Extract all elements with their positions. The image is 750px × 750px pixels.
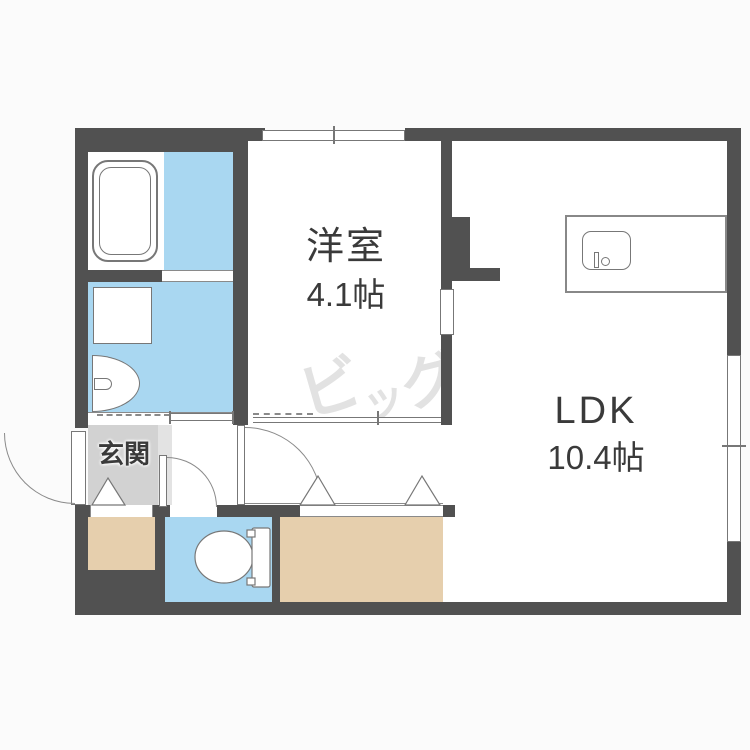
bath-door-opening xyxy=(162,270,233,282)
washroom-sliding-track-dashed xyxy=(97,414,170,416)
washroom-sliding-panel xyxy=(170,413,233,421)
ldk-area: 10.4帖 xyxy=(480,439,712,477)
closet-opening xyxy=(300,505,443,517)
floorplan-canvas: ビ ッ グ xyxy=(0,0,750,750)
storage-opening xyxy=(90,505,153,517)
bathtub-inner-rim xyxy=(99,167,151,255)
wall-ldk-stub xyxy=(452,268,500,281)
wall-bottom xyxy=(75,602,741,615)
toilet-door-leaf xyxy=(159,455,167,507)
westernroom-label-block: 洋室 4.1帖 xyxy=(248,226,444,314)
wall-toilet-right xyxy=(272,517,280,603)
toilet-room-floor xyxy=(165,517,272,603)
wall-left-upper xyxy=(75,128,88,428)
ldk-window-tick xyxy=(722,445,746,447)
westernroom-sliding-panel xyxy=(253,417,441,423)
wall-right-lower xyxy=(727,542,741,602)
wall-washroom-westernroom xyxy=(233,141,248,425)
entry-door-arc xyxy=(4,433,75,504)
ldk-window xyxy=(727,355,741,542)
westernroom-sliding-track-dashed xyxy=(253,413,313,415)
wall-right-upper xyxy=(727,141,741,355)
washroom-sliding-tick-right xyxy=(232,411,234,424)
entrance-label: 玄関 xyxy=(88,440,160,470)
hall-door-leaf xyxy=(237,425,245,505)
washing-machine-pan xyxy=(93,287,152,344)
wall-top-right xyxy=(405,128,741,141)
closet-floor xyxy=(280,517,443,603)
wall-top-left xyxy=(75,128,265,141)
washbasin-faucet xyxy=(94,378,112,390)
washroom-sliding-tick-left xyxy=(169,411,171,424)
wall-under-bath xyxy=(88,270,162,282)
wall-bath-top-thick xyxy=(88,141,233,152)
wall-bottomleft-fill xyxy=(88,570,160,602)
westernroom-window-tick xyxy=(333,126,335,144)
westernroom-area: 4.1帖 xyxy=(248,276,444,314)
wall-bottomstrip-d xyxy=(443,505,455,517)
kitchen-faucet-bar xyxy=(594,252,599,268)
entrance-storage-floor xyxy=(88,517,155,570)
bath-wet-strip xyxy=(164,152,233,270)
westernroom-name: 洋室 xyxy=(248,226,444,270)
wall-bottomstrip-c xyxy=(217,505,300,517)
ldk-label-block: LDK 10.4帖 xyxy=(480,390,712,477)
ldk-name: LDK xyxy=(480,390,712,434)
wall-bottomstrip-a xyxy=(75,505,90,517)
wall-left-lower xyxy=(75,505,88,615)
kitchen-faucet-knob xyxy=(601,257,610,266)
westernroom-sliding-tick xyxy=(377,411,379,425)
